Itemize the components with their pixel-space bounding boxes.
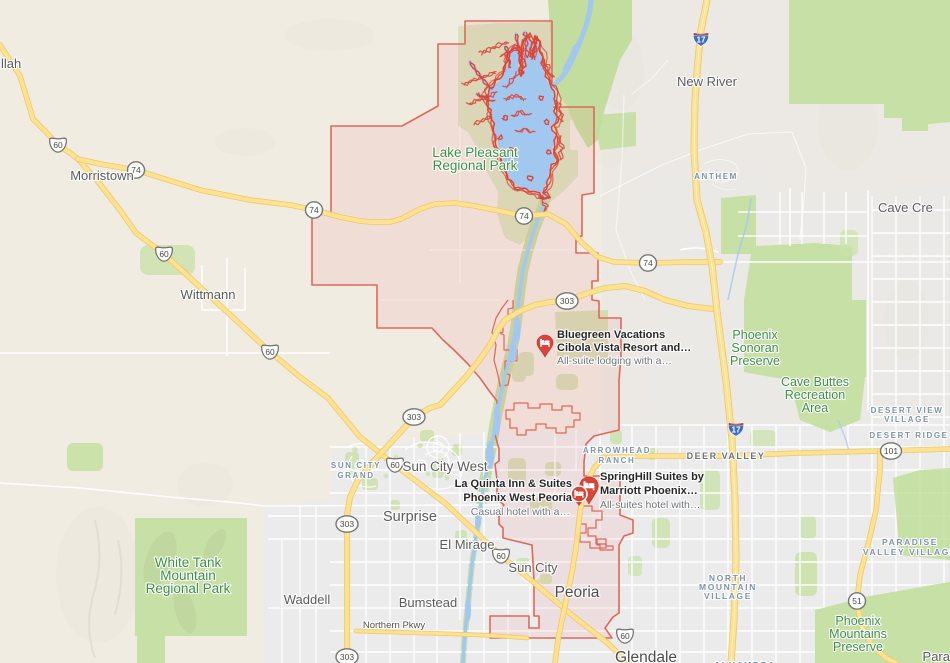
svg-text:Regional Park: Regional Park bbox=[146, 581, 231, 596]
svg-text:101: 101 bbox=[884, 446, 898, 456]
svg-text:Peoria: Peoria bbox=[555, 584, 600, 601]
svg-text:Cibola Vista Resort and…: Cibola Vista Resort and… bbox=[557, 342, 691, 354]
svg-text:74: 74 bbox=[309, 205, 319, 215]
svg-text:Para: Para bbox=[923, 649, 950, 663]
svg-text:Sun City: Sun City bbox=[508, 560, 558, 575]
svg-text:All-suite lodging with a…: All-suite lodging with a… bbox=[557, 355, 672, 367]
svg-text:Marriott Phoenix…: Marriott Phoenix… bbox=[600, 485, 698, 497]
svg-text:Mountains: Mountains bbox=[829, 627, 887, 641]
svg-text:Regional Park: Regional Park bbox=[433, 158, 518, 173]
svg-text:Cave Cre: Cave Cre bbox=[878, 200, 933, 215]
svg-text:All-suites hotel with…: All-suites hotel with… bbox=[600, 499, 700, 511]
svg-text:DESERT VIEW: DESERT VIEW bbox=[871, 406, 944, 415]
svg-text:La Quinta Inn & Suites: La Quinta Inn & Suites bbox=[455, 478, 572, 490]
svg-text:Recreation: Recreation bbox=[785, 388, 845, 402]
svg-text:60: 60 bbox=[620, 631, 630, 641]
svg-text:60: 60 bbox=[265, 347, 275, 357]
svg-text:303: 303 bbox=[407, 412, 421, 422]
svg-text:303: 303 bbox=[340, 519, 354, 529]
svg-text:Waddell: Waddell bbox=[284, 592, 331, 607]
svg-text:RANCH: RANCH bbox=[599, 456, 636, 465]
svg-text:Wittmann: Wittmann bbox=[181, 287, 236, 302]
svg-text:74: 74 bbox=[643, 258, 653, 268]
svg-text:SUN CITY: SUN CITY bbox=[331, 461, 381, 470]
svg-text:Sonoran: Sonoran bbox=[731, 341, 778, 355]
svg-text:303: 303 bbox=[560, 296, 574, 306]
svg-text:Phoenix: Phoenix bbox=[835, 614, 881, 628]
svg-text:GRAND: GRAND bbox=[337, 471, 374, 480]
svg-text:Preserve: Preserve bbox=[730, 354, 780, 368]
svg-text:51: 51 bbox=[852, 596, 862, 606]
svg-text:El Mirage: El Mirage bbox=[440, 537, 495, 552]
svg-text:74: 74 bbox=[519, 211, 529, 221]
svg-text:Surprise: Surprise bbox=[383, 509, 437, 525]
svg-text:VILLAGE: VILLAGE bbox=[704, 591, 752, 601]
svg-text:Northern Pkwy: Northern Pkwy bbox=[363, 620, 426, 631]
svg-text:VILLAGE: VILLAGE bbox=[884, 415, 930, 424]
svg-text:Glendale: Glendale bbox=[615, 649, 677, 663]
svg-text:Sun City West: Sun City West bbox=[402, 459, 488, 474]
svg-text:Phoenix: Phoenix bbox=[732, 328, 778, 342]
svg-text:17: 17 bbox=[696, 36, 706, 45]
svg-text:ANTHEM: ANTHEM bbox=[694, 172, 738, 181]
svg-text:VALLEY VILLAGE: VALLEY VILLAGE bbox=[863, 547, 950, 557]
svg-text:New River: New River bbox=[677, 74, 738, 89]
svg-text:DEER VALLEY: DEER VALLEY bbox=[687, 451, 766, 461]
svg-text:Morristown: Morristown bbox=[70, 168, 134, 183]
svg-text:Cave Buttes: Cave Buttes bbox=[781, 375, 849, 389]
svg-text:Bumstead: Bumstead bbox=[399, 595, 458, 610]
svg-text:60: 60 bbox=[53, 140, 63, 150]
svg-text:Area: Area bbox=[802, 401, 828, 415]
svg-text:17: 17 bbox=[731, 426, 741, 435]
svg-text:60: 60 bbox=[159, 249, 169, 259]
svg-text:PARADISE: PARADISE bbox=[882, 537, 938, 547]
svg-text:Bluegreen Vacations: Bluegreen Vacations bbox=[557, 329, 665, 341]
svg-text:SpringHill Suites by: SpringHill Suites by bbox=[600, 471, 705, 483]
svg-text:60: 60 bbox=[390, 460, 400, 470]
svg-text:Preserve: Preserve bbox=[833, 640, 883, 654]
svg-text:303: 303 bbox=[340, 652, 354, 662]
svg-text:60: 60 bbox=[496, 551, 506, 561]
svg-text:ARROWHEAD: ARROWHEAD bbox=[583, 446, 651, 455]
svg-text:DESERT RIDGE: DESERT RIDGE bbox=[869, 431, 948, 440]
svg-text:llah: llah bbox=[1, 56, 21, 71]
svg-text:Phoenix West Peoria: Phoenix West Peoria bbox=[463, 492, 572, 504]
svg-text:Casual hotel with a…: Casual hotel with a… bbox=[471, 506, 570, 518]
